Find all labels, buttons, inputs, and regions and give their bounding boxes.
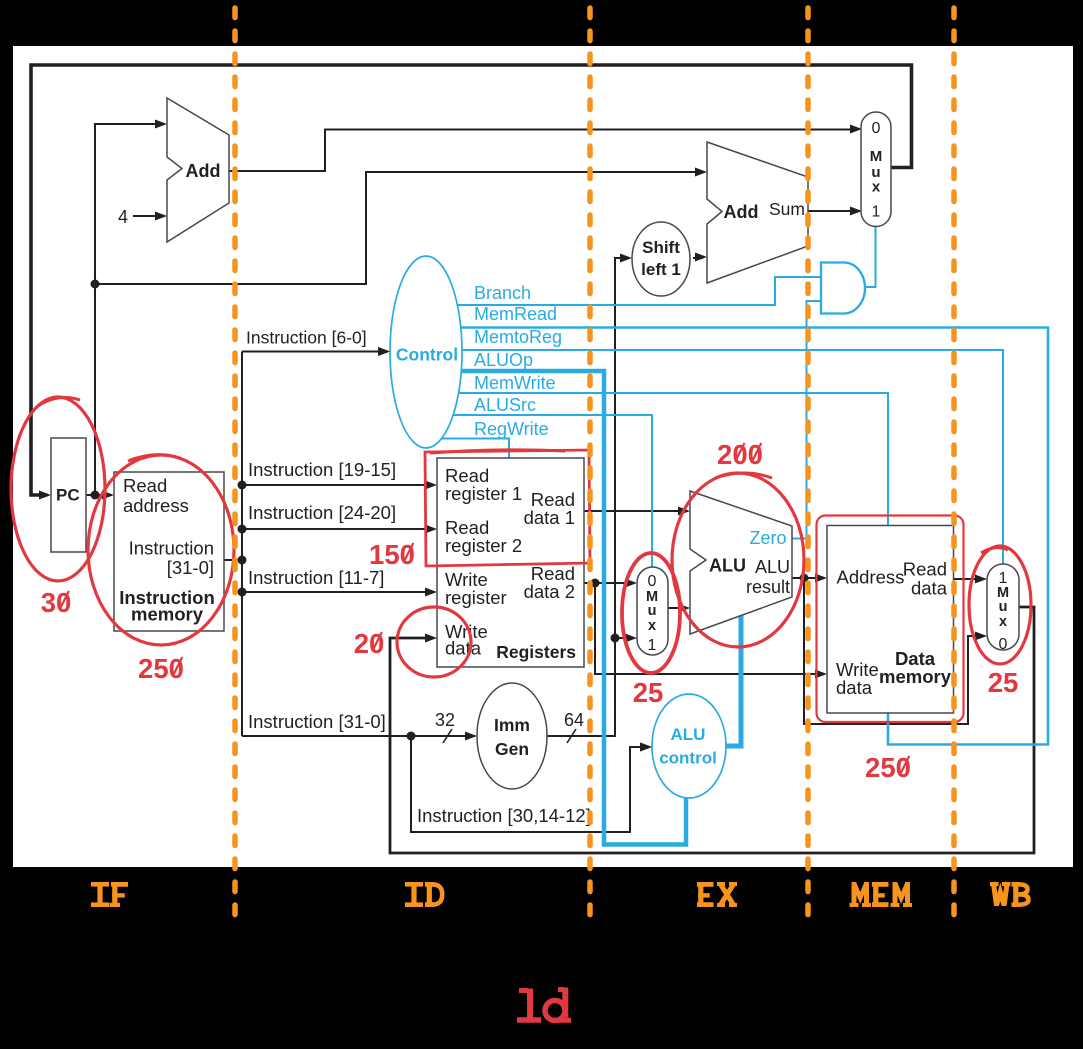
svg-text:[31-0]: [31-0] bbox=[167, 557, 214, 578]
svg-text:Branch: Branch bbox=[474, 283, 531, 303]
svg-text:memory: memory bbox=[131, 604, 204, 625]
svg-text:Read: Read bbox=[123, 475, 167, 496]
svg-text:Instruction [19-15]: Instruction [19-15] bbox=[248, 459, 396, 480]
svg-text:memory: memory bbox=[879, 666, 952, 687]
svg-text:register 1: register 1 bbox=[445, 483, 522, 504]
svg-text:ALUSrc: ALUSrc bbox=[474, 395, 536, 415]
svg-text:Read: Read bbox=[903, 559, 947, 580]
svg-text:Sum: Sum bbox=[769, 199, 805, 219]
svg-text:ALU: ALU bbox=[755, 557, 790, 577]
svg-text:Instruction [11-7]: Instruction [11-7] bbox=[248, 567, 384, 588]
svg-text:data 2: data 2 bbox=[524, 581, 575, 602]
svg-text:Imm: Imm bbox=[494, 715, 530, 735]
svg-text:M: M bbox=[870, 148, 883, 165]
svg-text:u: u bbox=[648, 603, 657, 619]
svg-text:MemRead: MemRead bbox=[474, 304, 557, 324]
svg-text:x: x bbox=[999, 614, 1007, 630]
svg-text:ALU: ALU bbox=[709, 556, 746, 576]
svg-text:control: control bbox=[659, 749, 717, 768]
svg-text:ALUOp: ALUOp bbox=[474, 350, 533, 370]
svg-text:u: u bbox=[999, 599, 1008, 615]
svg-text:Instruction [30,14-12]: Instruction [30,14-12] bbox=[417, 805, 591, 826]
svg-text:Instruction [24-20]: Instruction [24-20] bbox=[248, 502, 396, 523]
svg-text:MemWrite: MemWrite bbox=[474, 373, 556, 393]
svg-text:x: x bbox=[648, 618, 656, 634]
svg-text:Gen: Gen bbox=[495, 739, 529, 759]
svg-text:25: 25 bbox=[633, 677, 664, 708]
svg-text:Address: Address bbox=[837, 567, 905, 588]
svg-text:data: data bbox=[445, 638, 482, 659]
svg-text:Control: Control bbox=[396, 345, 458, 365]
svg-text:register: register bbox=[445, 587, 507, 608]
svg-text:Add: Add bbox=[186, 161, 221, 181]
svg-text:MemtoReg: MemtoReg bbox=[474, 327, 562, 347]
svg-text:Shift: Shift bbox=[642, 238, 680, 257]
svg-text:Add: Add bbox=[724, 202, 759, 222]
svg-text:20: 20 bbox=[354, 628, 385, 659]
svg-text:address: address bbox=[123, 495, 189, 516]
svg-text:register 2: register 2 bbox=[445, 535, 522, 556]
svg-text:0: 0 bbox=[648, 573, 657, 590]
svg-text:ALU: ALU bbox=[671, 725, 706, 744]
svg-text:data: data bbox=[836, 677, 873, 698]
svg-text:Instruction [6-0]: Instruction [6-0] bbox=[246, 328, 367, 348]
svg-text:RegWrite: RegWrite bbox=[474, 419, 549, 439]
svg-text:x: x bbox=[872, 179, 881, 196]
svg-text:data: data bbox=[911, 578, 948, 599]
svg-text:0: 0 bbox=[999, 636, 1008, 653]
svg-text:64: 64 bbox=[564, 710, 584, 730]
svg-text:0: 0 bbox=[872, 120, 881, 137]
svg-text:25: 25 bbox=[988, 667, 1019, 698]
svg-text:1: 1 bbox=[648, 637, 657, 654]
svg-text:30: 30 bbox=[41, 587, 72, 618]
svg-text:4: 4 bbox=[118, 207, 128, 227]
svg-text:Zero: Zero bbox=[749, 528, 786, 548]
svg-text:32: 32 bbox=[435, 710, 455, 730]
svg-text:PC: PC bbox=[56, 486, 80, 505]
svg-text:Instruction: Instruction bbox=[129, 538, 214, 559]
svg-text:Instruction [31-0]: Instruction [31-0] bbox=[248, 711, 386, 732]
svg-text:1: 1 bbox=[872, 204, 881, 221]
svg-text:left 1: left 1 bbox=[641, 260, 681, 279]
svg-text:result: result bbox=[746, 577, 790, 597]
svg-text:Registers: Registers bbox=[496, 642, 576, 662]
svg-text:data 1: data 1 bbox=[524, 507, 575, 528]
